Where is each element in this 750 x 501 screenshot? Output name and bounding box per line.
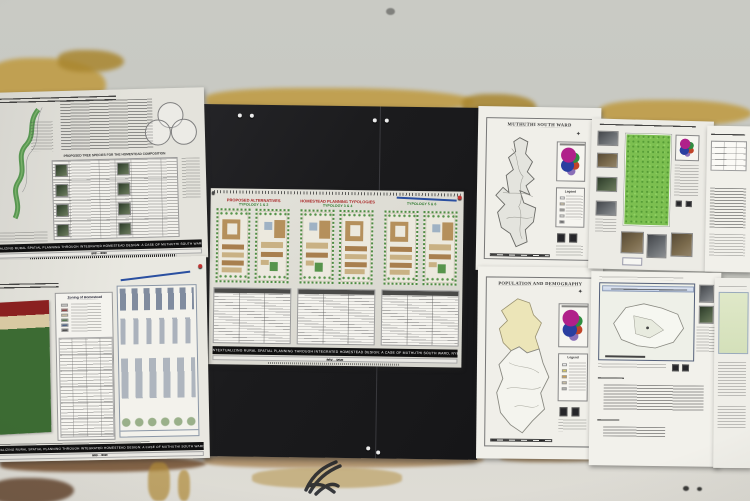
section-heading [598,377,624,380]
white-pushpin-icon [366,446,370,450]
legend-entries [565,195,582,219]
tree-photo-thumb [118,202,131,215]
display-board: PROPOSED ALTERNATIVES TYPOLOGY 1 & 2 HOM… [197,104,482,460]
plan-tree-row [120,415,198,428]
paint-peel-patch [58,50,124,72]
specs-table [213,287,292,344]
logo-mark [682,364,689,371]
tree-species-table [52,157,180,240]
paragraph-text-block [709,234,745,257]
university-logo [559,407,567,416]
credits-text [556,245,583,255]
poster-demography-map: POPULATION AND DEMOGRAPHY ✦ Legend [476,266,603,459]
mini-sketch-map [622,257,642,266]
legend-swatch [560,202,565,205]
site-plan-drawing [383,211,418,285]
sublocation-map-frame [598,282,695,361]
compass-rose-icon: ✦ [576,132,581,138]
poster-ward-map: MUTHUTHI SOUTH WARD ✦ Legend [476,106,602,272]
university-logo [557,233,565,242]
satellite-land-map [623,133,671,226]
section-subtitle: TYPOLOGY 1 & 2 [215,202,293,207]
plan-buildings [219,211,248,279]
legend-swatch [562,363,567,366]
legend-swatch [559,220,564,223]
author-reg-no: B63/····/2020 [91,251,106,254]
page-heading [711,134,745,138]
zoning-legend-panel: Zoning of Homestead [55,292,116,441]
section-subtitle: TYPOLOGY 5 & 6 [383,202,461,207]
map-title-bar [602,285,694,292]
map-title: POPULATION AND DEMOGRAPHY [488,280,593,286]
bullet-text-block [603,426,665,437]
department-logo [569,234,577,243]
barcode-strip [268,361,400,365]
notes-text [674,165,699,198]
typology-section-2: HOMESTEAD PLANNING TYPOLOGIES TYPOLOGY 3… [297,198,377,347]
stain-drip [148,462,170,501]
white-pushpin-icon [238,114,242,118]
paragraph-text-block [60,99,153,151]
side-note-text [0,231,48,242]
map-legend-text [31,121,54,152]
tree-photo-thumb [117,182,130,195]
tree-photo-thumb [56,204,69,217]
poster-partial-table [705,126,750,273]
heading-text-block [0,283,59,289]
paragraph-text-block [718,362,746,396]
scale-bar [490,438,552,442]
plan-buildings [342,213,371,281]
legend-swatch [560,214,565,217]
typology-section-1: PROPOSED ALTERNATIVES TYPOLOGY 1 & 2 [213,197,293,346]
site-plan-drawing [339,210,374,284]
photo-caption [696,327,714,353]
site-photo-thumb [597,153,618,169]
zoning-title: Zoning of Homestead [58,295,112,300]
inset-colored-regions [560,145,582,177]
legend-swatch [61,309,68,312]
paragraph-text-block [709,188,746,229]
legend-swatch [560,196,565,199]
site-photo-thumb [670,233,693,258]
site-photo-thumb [596,177,617,193]
ward-outline-map [488,292,556,441]
homestead-zoning-map [0,300,51,435]
mini-inset-map [675,135,700,162]
section-heading [597,419,619,422]
page-caption [599,276,683,280]
poster-heading [600,124,696,130]
white-pushpin-icon [376,450,380,454]
site-plan-drawing [422,211,457,285]
legend-swatch [61,319,68,322]
legend-swatch [61,329,68,332]
logo-mark [672,364,679,371]
legend-swatch [562,381,567,384]
legend-swatch [61,314,68,317]
site-photo-thumb [620,231,644,254]
page-caption [719,286,747,289]
poster-site-analysis [588,118,714,271]
plan-buildings [387,214,416,282]
tree-photo-thumb [118,222,131,235]
specs-table [297,288,376,345]
scale-bar [605,355,645,358]
typology-section-3: TYPOLOGY 5 & 6 [381,200,461,349]
county-inset-map [556,141,586,182]
legend-title: Legend [559,355,587,359]
site-photo-thumb [595,201,616,217]
tree-photo-thumb [55,184,68,197]
legend-title: Legend [557,189,584,193]
stakeholder-venn-diagram [142,101,199,148]
tree-photo-thumb [117,162,130,175]
logo-mark [676,201,682,207]
data-table [710,141,747,172]
water-stain [0,478,74,501]
dark-pushpin-icon [212,191,215,194]
logo-mark [686,201,692,207]
site-photo-thumb [597,131,618,147]
site-plan-drawing [216,208,251,282]
compass-rose-icon: ✦ [578,289,583,295]
legend-swatch [562,369,567,372]
homestead-plan-drawing [117,284,200,438]
respondent-photo [699,285,714,303]
map-legend: Legend [558,353,589,401]
plan-structures [121,357,196,406]
plan-buildings [426,214,455,282]
poster-partial-map [713,278,750,468]
venn-circle [171,118,198,145]
author-reg-no: B63/····/2020 [92,453,107,456]
white-pushpin-icon [250,114,254,118]
poster-sublocation-doc [589,271,722,467]
plan-ground-line [120,429,198,431]
wall-mark [697,487,702,491]
legend-swatch [61,324,68,327]
site-plan-drawing [255,209,290,283]
zoning-table [59,337,115,438]
legend-swatch [562,375,567,378]
sublocation-outline [603,293,692,356]
wall-mark [683,486,689,491]
photo-captions [595,219,616,234]
poster-top-ruler [214,190,461,196]
side-note-text [182,157,201,197]
wall-mark [386,8,395,15]
author-reg-no: B63/····/2020 [327,357,344,361]
site-photo-thumb [646,234,667,259]
stain-drip [178,470,190,501]
plan-structures [120,287,195,348]
venn-circle [145,119,172,146]
site-plan-drawing [300,209,335,283]
respondent-photo [699,306,714,324]
poster-homestead-typologies: PROPOSED ALTERNATIVES TYPOLOGY 1 & 2 HOM… [208,188,463,368]
white-pushpin-icon [373,118,377,122]
section-subtitle: TYPOLOGY 3 & 4 [299,203,377,208]
ward-boundary-map [488,132,554,255]
blue-annotation-line [121,271,191,281]
legend-entries [569,362,586,392]
tree-photo-thumb [56,224,69,237]
poster-zoning-left-bottom: Zoning of Homestead CONTEXTUALIZING RURA… [0,256,210,462]
tree-photo-thumb [55,164,68,177]
specs-table [381,290,460,347]
white-pushpin-icon [385,119,389,123]
paragraph-text-block [718,406,746,428]
inset-colored-regions [678,138,697,158]
legend-swatch [562,387,567,390]
map-legend-row [598,363,666,369]
wall-scribble [296,452,352,498]
county-inset-map [558,303,588,347]
inset-colored-regions [562,307,584,343]
red-pushpin-icon [198,264,202,268]
credits-text [558,419,586,431]
poster-analysis-left-top: PROPOSED TREE SPECIES FOR THE HOMESTEAD … [0,87,208,262]
department-logo [571,407,579,416]
map-legend: Legend [555,187,585,228]
plan-buildings [258,212,287,280]
bullet-text-block [603,384,703,411]
legend-swatch [560,208,565,211]
map-title-text [611,288,687,292]
legend-swatch [61,304,68,307]
plan-buildings [303,212,332,280]
legend-labels [71,303,102,333]
pale-green-map [718,292,749,354]
photo-wall-scene: PROPOSED ALTERNATIVES TYPOLOGY 1 & 2 HOM… [0,0,750,501]
red-pushpin-icon [458,196,462,200]
